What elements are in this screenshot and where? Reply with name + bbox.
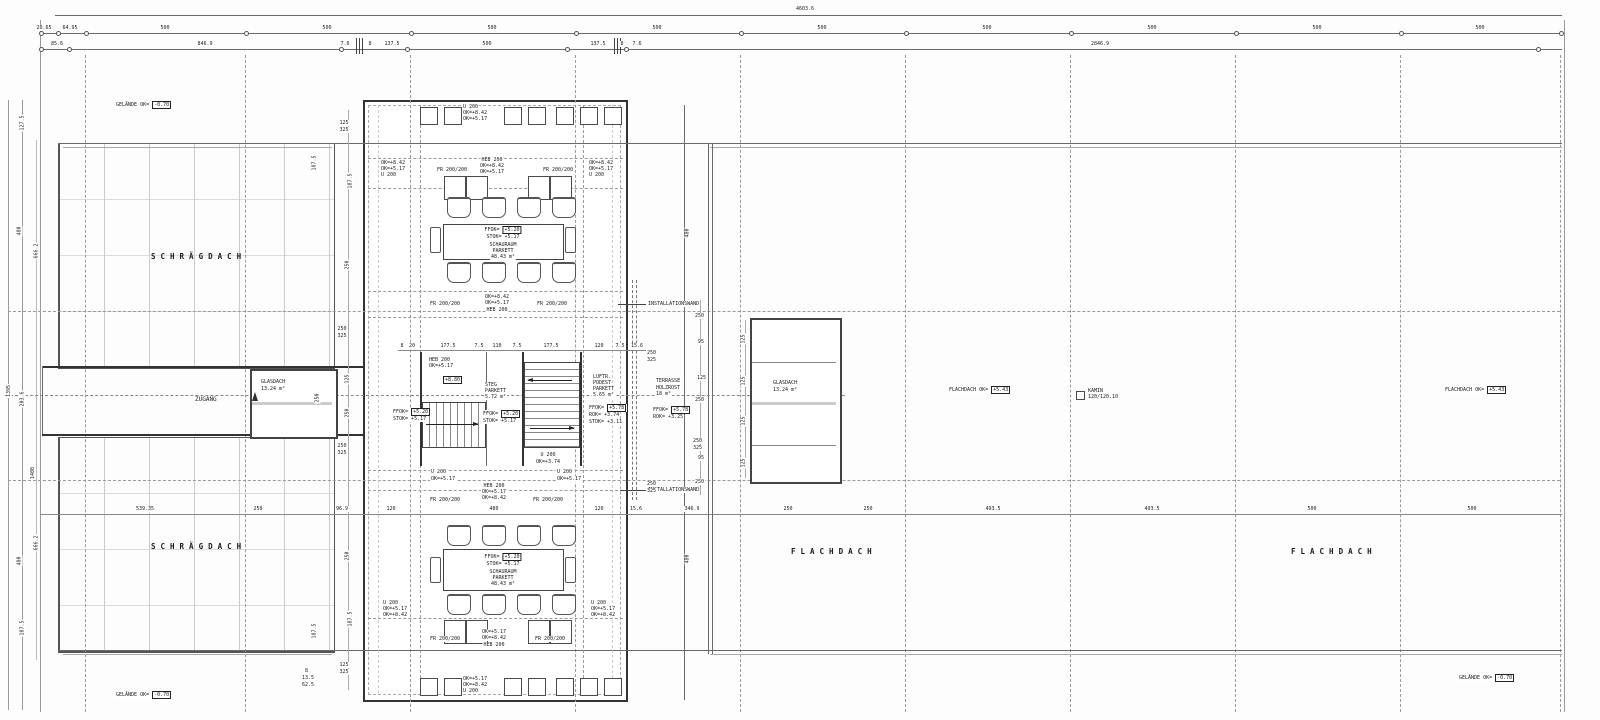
dim-label: 846.9 [196, 41, 213, 47]
chair [517, 594, 541, 615]
level-note-ffok: FFOK= +5.78 [588, 404, 627, 412]
dim-label: 187.5 [348, 172, 354, 189]
dim-label: 325 [336, 450, 347, 456]
skylight [580, 678, 598, 696]
grid-node [39, 31, 44, 36]
wall-line [708, 143, 709, 654]
dim-label: 125 [345, 373, 351, 384]
grid-node [624, 47, 629, 52]
dim-label: 8 [399, 343, 404, 349]
level-note-stok: STOK= +3.11 [588, 419, 623, 425]
axis-line-h [5, 395, 845, 396]
dim-label: 500 [981, 25, 992, 31]
level-note: OK=+5.17 [556, 476, 582, 482]
beam-line-v [378, 105, 379, 693]
room-area: 13.24 m² [260, 386, 286, 392]
beam-line-h [368, 317, 623, 318]
dim-label: 250 [336, 443, 347, 449]
dim-label: 125 [696, 375, 707, 381]
beam-note: U 200 [588, 172, 605, 178]
dim-label: 250 [345, 259, 351, 270]
dim-label: 8 [619, 41, 624, 47]
roof-edge-line [58, 143, 1562, 144]
dim-label: 480 [685, 553, 691, 564]
dim-label: 7.6 [339, 41, 350, 47]
level-note-ffok: FFOK= +5.20 [483, 226, 522, 234]
chain-line-v [36, 140, 37, 660]
dim-label: 500 [481, 41, 492, 47]
grid-node [1069, 31, 1074, 36]
section-tick [356, 38, 357, 54]
level-note-rok: ROK= +3.74 [588, 412, 620, 418]
level-note: OK=+5.17 [479, 169, 505, 175]
chair [447, 525, 471, 546]
room-label-schraegdach: SCHRÄGDACH [150, 543, 247, 550]
dim-label: 125 [741, 375, 747, 386]
beam-note: FR 200/200 [436, 167, 468, 173]
dim-label: 250 [646, 481, 657, 487]
glass-mullion [752, 362, 836, 363]
glass-mullion [752, 445, 836, 446]
end-chair [565, 557, 576, 583]
chair [482, 197, 506, 218]
dim-label: 187.5 [348, 610, 354, 627]
dim-label: 250 [336, 326, 347, 332]
dim-label: 20 [408, 343, 416, 349]
chimney [1076, 391, 1085, 400]
beam-note: FR 200/200 [429, 497, 461, 503]
dim-label: 127.5 [20, 114, 26, 131]
skylight [420, 107, 438, 125]
level-note-stok: STOK= +5.17 [392, 416, 427, 422]
dim-label: 85.6 [50, 41, 64, 47]
dim-label: 325 [646, 488, 657, 494]
end-chair [430, 557, 441, 583]
room-label-glasdach: GLASDACH [260, 379, 286, 385]
glasdach-right [750, 318, 842, 484]
room-label-flachdach: FLACHDACH [1290, 548, 1378, 555]
room-label-terrasse: TERRASSE [655, 378, 681, 384]
dim-label: 250 [315, 392, 321, 403]
level-note: OK=+8.42 [481, 635, 507, 641]
dim-label: 1400 [30, 466, 36, 480]
chair [552, 594, 576, 615]
dim-label: 480 [17, 225, 23, 236]
stair-direction-arrow [426, 424, 478, 425]
dim-label: 500 [1474, 25, 1485, 31]
chair [482, 262, 506, 283]
room-label-schraegdach: SCHRÄGDACH [150, 253, 247, 260]
dim-label: 500 [816, 25, 827, 31]
dim-label: 539.35 [135, 506, 155, 512]
dim-label: 187.5 [312, 622, 318, 639]
room-label-glasdach: GLASDACH [772, 380, 798, 386]
wall-line [486, 352, 487, 466]
dim-label: 480 [685, 227, 691, 238]
stair-flight-east [524, 362, 580, 448]
dim-label: 120 [385, 506, 396, 512]
level-note-gelaende: GELÄNDE OK= -0.70 [1458, 674, 1515, 682]
end-chair [430, 227, 441, 253]
level-note-gelaende: GELÄNDE OK= -0.70 [115, 691, 172, 699]
beam-note: U 200 [556, 469, 573, 475]
dim-label: 666.2 [34, 242, 40, 259]
dim-label: 137.5 [383, 41, 400, 47]
beam-line-h [368, 291, 623, 292]
grid-line-v [1560, 55, 1561, 712]
dim-label: 250 [345, 407, 351, 418]
dim-label: 500 [651, 25, 662, 31]
grid-node [739, 31, 744, 36]
grid-line-v [85, 55, 86, 712]
dim-label: 250 [694, 313, 705, 319]
beam-note: U 200 [539, 452, 556, 458]
beam-line-h [368, 470, 623, 471]
dim-label: 125 [741, 457, 747, 468]
skylight [604, 678, 622, 696]
floor-plan-canvas: 4603.6 20.65 64.95 500 500 500 500 500 5… [0, 0, 1600, 720]
dim-label: 125 [741, 415, 747, 426]
dim-label: 325 [338, 127, 349, 133]
room-area: 13.24 m² [772, 387, 798, 393]
section-tick [617, 38, 618, 54]
grid-node [67, 47, 72, 52]
dim-label: 15.6 [629, 506, 643, 512]
skylight [444, 107, 462, 125]
chair [517, 262, 541, 283]
grid-node [904, 31, 909, 36]
end-chair [565, 227, 576, 253]
dim-label: 500 [159, 25, 170, 31]
level-note-flachdach: FLACHDACH OK= +5.43 [1444, 386, 1507, 394]
dim-label: 13.5 [301, 675, 315, 681]
room-area: 18 m² [655, 391, 672, 397]
chain-line-v [8, 100, 9, 710]
grid-node [565, 47, 570, 52]
installation-wall [636, 280, 637, 500]
glass-mullion [752, 402, 836, 405]
dim-label: 500 [1306, 506, 1317, 512]
dim-label: 187.5 [312, 154, 318, 171]
level-note: OK=+3.74 [535, 459, 561, 465]
dim-label: 110 [491, 343, 502, 349]
beam-line-h [368, 618, 623, 619]
room-area: 48.43 m² [490, 254, 516, 260]
level-note: OK=+8.42 [481, 495, 507, 501]
dim-label: 325 [338, 669, 349, 675]
grid-line-v [1070, 55, 1071, 712]
section-arrow-icon [252, 392, 258, 401]
beam-line-h [368, 188, 623, 189]
dim-label: 493.5 [984, 506, 1001, 512]
level-note-stok: STOK= +5.17 [485, 561, 520, 567]
dim-label: 7.5 [473, 343, 484, 349]
chain-line-v [1564, 20, 1565, 712]
beam-note: FR 200/200 [534, 636, 566, 642]
dim-label: 250 [646, 350, 657, 356]
level-note: OK=+8.42 [590, 612, 616, 618]
level-note-stok: STOK= +5.17 [482, 418, 517, 424]
level-note-stok: STOK= +5.17 [485, 234, 520, 240]
level-note: OK=+5.17 [462, 116, 488, 122]
dim-label: 8 [304, 668, 309, 674]
skylight [556, 678, 574, 696]
dim-label: 4603.6 [795, 6, 815, 12]
dim-label: 500 [486, 25, 497, 31]
dim-label: 666.2 [34, 534, 40, 551]
dim-label: 250 [692, 438, 703, 444]
skylight [420, 678, 438, 696]
beam-note: HEB 200 [482, 642, 505, 648]
grid-node [39, 47, 44, 52]
beam-line-v [583, 105, 584, 693]
skylight [504, 107, 522, 125]
level-note-ffok: FFOK= +5.20 [483, 553, 522, 561]
roof-edge-line [710, 654, 1562, 655]
room-area: 48.43 m² [490, 581, 516, 587]
dim-label: 493.5 [1143, 506, 1160, 512]
skylight [556, 107, 574, 125]
level-note-ffok: FFOK= +5.78 [652, 406, 691, 414]
chair [482, 525, 506, 546]
skylight [504, 678, 522, 696]
grid-node [409, 31, 414, 36]
dim-label: 1395 [6, 384, 12, 398]
grid-node [56, 31, 61, 36]
skylight [580, 107, 598, 125]
chair [447, 197, 471, 218]
dim-line [40, 49, 1562, 50]
chair [482, 594, 506, 615]
dim-label: 346.9 [683, 506, 700, 512]
dim-label: 500 [321, 25, 332, 31]
beam-line-v [612, 105, 613, 693]
grid-node [1536, 47, 1541, 52]
level-note-ffok: FFOK= +5.20 [392, 408, 431, 416]
skylight [528, 107, 546, 125]
grid-line-v [410, 55, 411, 712]
dim-line [40, 33, 1562, 34]
dim-label: 250 [862, 506, 873, 512]
chair [552, 525, 576, 546]
dim-label: 96.9 [335, 506, 349, 512]
grid-node [1234, 31, 1239, 36]
room-area: 5.72 m² [484, 394, 507, 400]
dim-label: 250 [782, 506, 793, 512]
dim-label: 62.5 [301, 682, 315, 688]
level-note-rok: ROK= +3.25 [652, 414, 684, 420]
wall-line [42, 366, 43, 434]
level-note: OK=+5.17 [430, 476, 456, 482]
dim-label: 250 [345, 550, 351, 561]
dim-label: 480 [17, 555, 23, 566]
stair-direction-arrow [528, 380, 572, 381]
grid-node [1399, 31, 1404, 36]
dim-label: 2846.9 [1090, 41, 1110, 47]
grid-node [339, 47, 344, 52]
beam-note: FR 200/200 [429, 301, 461, 307]
beam-note: FR 200/200 [532, 497, 564, 503]
level-note-flachdach: FLACHDACH OK= +5.43 [948, 386, 1011, 394]
level-note: OK=+8.42 [382, 612, 408, 618]
chair [517, 197, 541, 218]
dim-label: 250 [694, 479, 705, 485]
wall-line [684, 105, 685, 700]
section-tick [362, 38, 363, 54]
chair [517, 525, 541, 546]
room-label-flachdach: FLACHDACH [790, 548, 878, 555]
note-installationswand: INSTALLATIONSWAND [647, 301, 700, 307]
chain-line-v [348, 110, 349, 690]
dim-label: 325 [692, 445, 703, 451]
dim-label: 125 [338, 120, 349, 126]
level-note-ffok: FFOK= +5.20 [482, 410, 521, 418]
grid-line-v [245, 55, 246, 712]
room-label-zugang: ZUGANG [194, 396, 218, 403]
dim-label: 125 [338, 662, 349, 668]
dim-label: 120 [593, 506, 604, 512]
level-note: OK=+5.17 [428, 363, 454, 369]
dim-label: 64.95 [61, 25, 78, 31]
dim-label: 250 [694, 397, 705, 403]
stair-direction-arrow [530, 428, 574, 429]
wall-line [42, 366, 363, 368]
beam-note: FR 200/200 [542, 167, 574, 173]
dim-label: 95 [697, 339, 705, 345]
chair [552, 197, 576, 218]
section-tick [614, 38, 615, 54]
dim-label: 187.5 [20, 619, 26, 636]
label-kamin-size: 120/120.10 [1087, 394, 1119, 400]
installation-wall [632, 280, 633, 500]
roof-edge-line [58, 650, 1562, 651]
beam-note: HEB 200 [485, 307, 508, 313]
dim-line [40, 514, 1562, 515]
dim-label: 7.5 [511, 343, 522, 349]
dim-label: 7.6 [631, 41, 642, 47]
leader-line [620, 490, 646, 491]
chain-line-v [40, 20, 41, 712]
dim-label: 480 [488, 506, 499, 512]
grid-node [84, 31, 89, 36]
roof-edge-line [63, 147, 332, 148]
roof-edge-line [710, 147, 1562, 148]
section-tick [359, 38, 360, 54]
wall-line [580, 352, 582, 466]
dim-label: 120 [593, 343, 604, 349]
skylight [528, 678, 546, 696]
grid-line-v [1235, 55, 1236, 712]
level-note-gelaende: GELÄNDE OK= -0.70 [115, 101, 172, 109]
dim-label: 15.6 [630, 343, 644, 349]
dim-label: 203.6 [20, 390, 26, 407]
grid-line-h [8, 311, 1560, 312]
room-area: 5.65 m² [592, 392, 615, 398]
beam-note: FR 200/200 [429, 636, 461, 642]
wall-line [712, 143, 713, 654]
dim-line [398, 350, 646, 351]
skylight [604, 107, 622, 125]
roof-edge-line [63, 654, 332, 655]
grid-node [1559, 31, 1564, 36]
chair [447, 262, 471, 283]
grid-node [244, 31, 249, 36]
beam-note: U 200 [430, 469, 447, 475]
beam-note: U 200 [462, 688, 479, 694]
dim-label: 20.65 [35, 25, 52, 31]
dim-label: 95 [697, 455, 705, 461]
dim-label: 7.5 [614, 343, 625, 349]
dim-label: 177.5 [542, 343, 559, 349]
beam-note: U 200 [380, 172, 397, 178]
dim-label: 500 [1146, 25, 1157, 31]
level-note: OK=+5.17 [484, 300, 510, 306]
grid-node [574, 31, 579, 36]
beam-note: FR 200/200 [536, 301, 568, 307]
dim-label: 177.5 [439, 343, 456, 349]
skylight [444, 678, 462, 696]
level-note: +8.80 [442, 376, 463, 384]
dim-label: 125 [741, 333, 747, 344]
dim-label: 325 [646, 357, 657, 363]
grid-line-v [1400, 55, 1401, 712]
grid-line-v [905, 55, 906, 712]
dim-line [55, 15, 1562, 16]
dim-label: 500 [1466, 506, 1477, 512]
dim-label: 500 [1311, 25, 1322, 31]
chair [447, 594, 471, 615]
dim-label: 325 [336, 333, 347, 339]
chair [552, 262, 576, 283]
dim-label: 137.5 [589, 41, 606, 47]
dim-label: 8 [367, 41, 372, 47]
grid-node [405, 47, 410, 52]
dim-label: 250 [252, 506, 263, 512]
